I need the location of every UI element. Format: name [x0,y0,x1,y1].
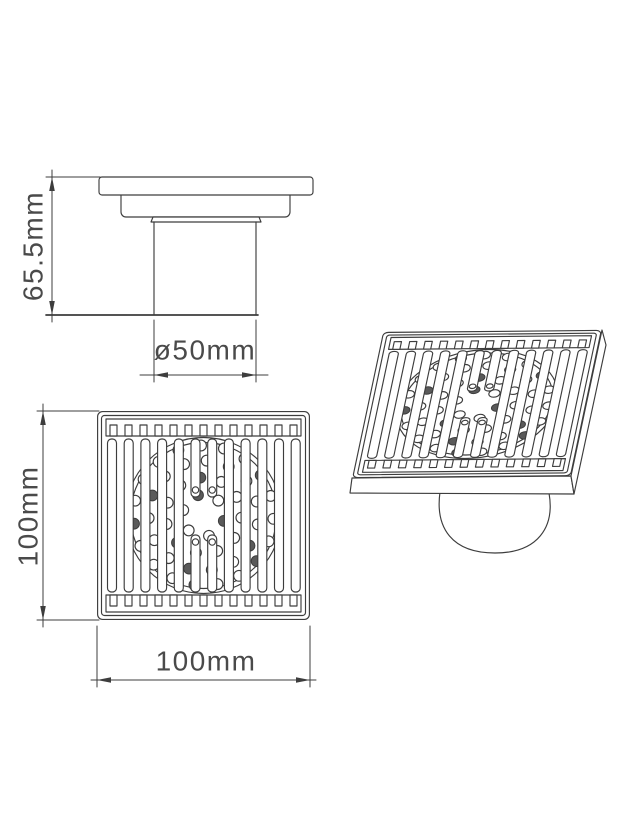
arrowhead-down [49,301,55,315]
rail-slot [439,341,448,349]
rail-slot [553,459,562,467]
rail-slot [445,460,454,468]
plan-view-grate [98,412,310,620]
rail-slot [522,459,531,467]
rail-slot [547,340,556,348]
rail-slot [170,425,177,436]
rail-slot [125,595,132,606]
rail-slot [408,341,417,349]
arrowhead-right [296,677,310,683]
rail-slot [110,595,117,606]
grate-slat [275,439,284,592]
rail-slot [491,459,500,467]
rail-slot [200,425,207,436]
rail-slot [170,595,177,606]
rail-slot [230,425,237,436]
iso-outlet-pipe [439,492,550,553]
grate-slat [258,439,267,592]
rail-slot [200,595,207,606]
rail-slot [260,425,267,436]
rail-slot [215,595,222,606]
rail-slot [383,460,392,468]
rail-slot [185,595,192,606]
grate-slat [141,439,150,592]
drawing-canvas: 65.5mm ø50mm 100mm 100mm [0,0,624,832]
rail-slot [140,425,147,436]
rail-slot [393,342,402,350]
rail-slot [454,341,463,349]
iso-grate-top [353,330,602,477]
grate-slat [124,439,133,592]
rail-slot [485,341,494,349]
arrowhead-down [40,606,46,620]
rail-slot [531,340,540,348]
grate-slat [108,439,117,592]
rail-slot [275,595,282,606]
rail-slot [398,460,407,468]
dimension-overall-height: 65.5mm [18,170,101,322]
grate-slat [158,439,167,592]
arrowhead-up [49,177,55,191]
rail-slot [260,595,267,606]
rail-slot [506,459,515,467]
rail-slot [185,425,192,436]
rail-slot [125,425,132,436]
strainer-hole [183,525,194,536]
arrowhead-up [40,411,46,425]
dimension-grate-width: 100mm [91,626,316,687]
rail-slot [290,595,297,606]
rail-slot [414,460,423,468]
rail-slot [475,459,484,467]
dimension-label-grate-height: 100mm [13,466,44,567]
rail-slot [424,341,433,349]
rail-slot [245,425,252,436]
rail-slot [155,595,162,606]
arrowhead-right [242,372,256,378]
dimension-label-overall-height: 65.5mm [18,191,49,301]
rail-slot [275,425,282,436]
rail-slot [215,425,222,436]
dimension-label-pipe-diameter: ø50mm [154,335,256,366]
side-view-pipe-collar [151,217,261,222]
side-view-flange-top [99,177,313,195]
rail-slot [501,341,510,349]
rail-slot [367,460,376,468]
grate-slat [174,439,183,592]
isometric-view [350,330,606,553]
arrowhead-left [154,372,168,378]
grate-slat [224,439,233,592]
grate-slat [241,439,250,592]
technical-drawing-page: 65.5mm ø50mm 100mm 100mm [0,0,624,832]
rail-slot [516,340,525,348]
rail-slot [230,595,237,606]
rail-slot [470,341,479,349]
rail-slot [537,459,546,467]
rail-slot [245,595,252,606]
dimension-pipe-diameter: ø50mm [140,320,268,382]
rail-slot [140,595,147,606]
side-view [46,177,313,315]
rail-slot [155,425,162,436]
rail-slot [110,425,117,436]
dimension-label-grate-width: 100mm [156,646,257,677]
rail-slot [578,340,587,348]
rail-slot [562,340,571,348]
grate-slat [291,439,300,592]
rail-slot [429,460,438,468]
iso-right-rim [571,330,606,494]
arrowhead-left [97,677,111,683]
rail-slot [460,460,469,468]
dimension-grate-height: 100mm [13,404,100,627]
rail-slot [290,425,297,436]
iso-front-rim [350,476,574,494]
